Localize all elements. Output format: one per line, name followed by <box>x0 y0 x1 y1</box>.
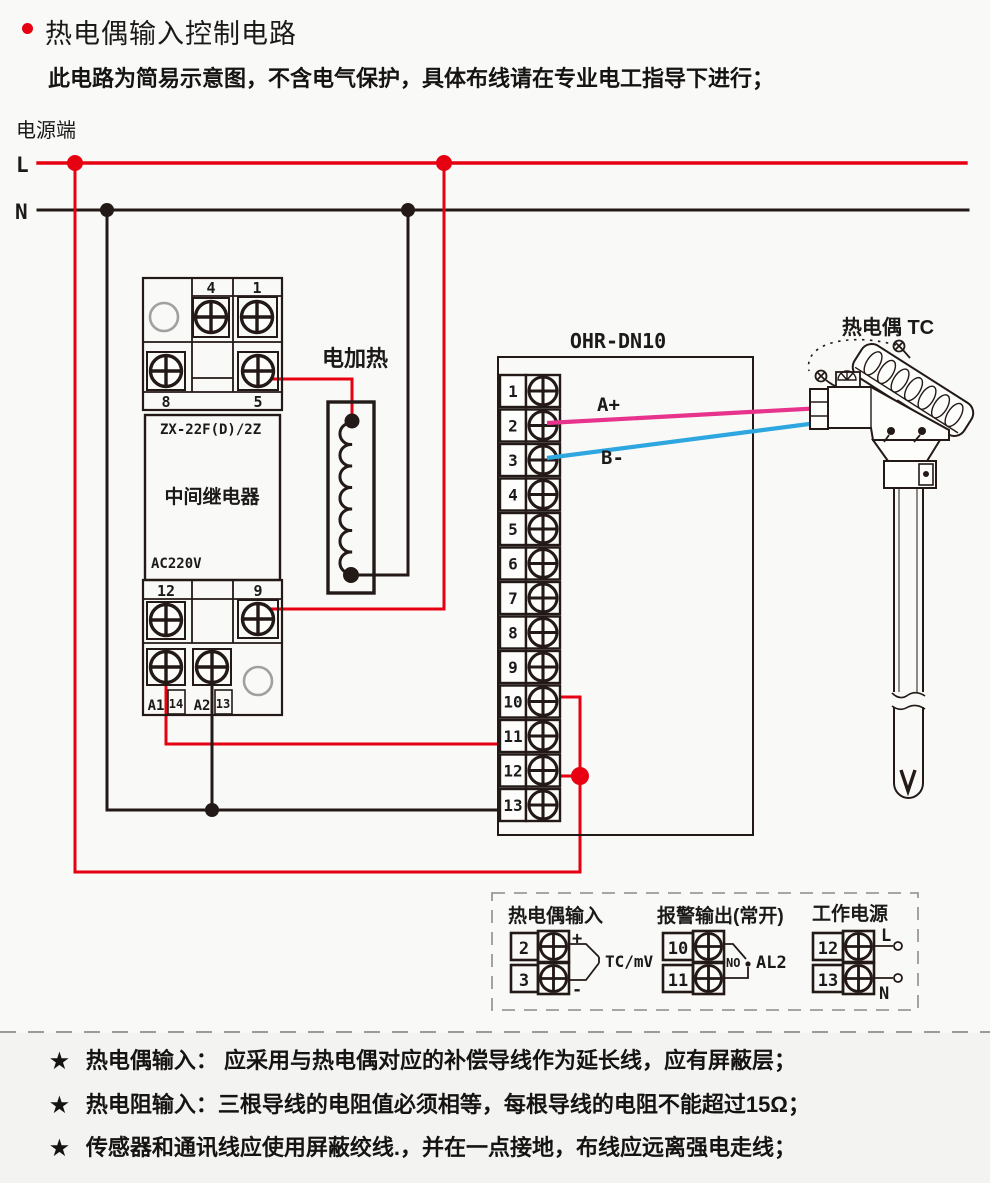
alarm-name-label: AL2 <box>756 953 787 973</box>
neutral-line-label: N <box>15 200 28 224</box>
relay-terminal-label: 4 <box>206 279 215 297</box>
ohr-terminal-row: 4 <box>500 479 560 511</box>
relay-unit: 4 1 8 5 ZX-22F(D)/2Z 中间继电器 AC220V 12 9 A… <box>143 278 282 715</box>
heater-bottom-node <box>343 567 359 583</box>
ohr-terminal-screw <box>529 550 557 578</box>
ohr-terminal-number: 8 <box>508 624 518 643</box>
relay-terminal-label: 8 <box>161 393 170 411</box>
legend-signal-label: TC/mV <box>605 952 654 971</box>
polarity-plus: + <box>572 929 582 949</box>
supply-neutral-label: N <box>879 984 889 1004</box>
ohr-terminal-number: 1 <box>508 382 518 401</box>
ohr-terminal-number: 9 <box>508 658 518 677</box>
junction-dot <box>436 155 452 171</box>
ohr-terminal-number: 5 <box>508 520 518 539</box>
ohr-title: OHR-DN10 <box>570 329 666 353</box>
ohr-terminal-row: 2 <box>500 410 560 442</box>
heater-outline <box>328 402 374 593</box>
ohr-terminal-number: 10 <box>503 693 522 712</box>
live-line-label: L <box>16 153 29 177</box>
ohr-terminal-number: 11 <box>503 727 522 746</box>
heater-coil <box>340 423 352 574</box>
junction-dot <box>205 803 219 817</box>
relay-screw-5 <box>243 356 274 387</box>
relay-terminal-label: 5 <box>253 393 262 411</box>
power-terminal-label: 电源端 <box>16 119 76 142</box>
relay-terminal-label: 9 <box>253 582 262 600</box>
relay-screw-A2 <box>197 652 228 683</box>
ohr-terminal-row: 8 <box>500 617 560 649</box>
tc-terminal-node <box>918 427 926 435</box>
relay-model: ZX-22F(D)/2Z <box>160 422 261 438</box>
ohr-terminal-screw <box>529 688 557 716</box>
legend-box: 热电偶输入 2 3 + - TC/mV 报警输出(常开) <box>492 893 918 1010</box>
legend-terminal-number: 2 <box>519 939 529 959</box>
ohr-terminal-screw <box>529 791 557 819</box>
legend-terminal-number: 10 <box>668 939 688 959</box>
relay-screw-A1 <box>151 652 182 683</box>
ohr-terminal-screw <box>529 412 557 440</box>
legend-alarm-output: 报警输出(常开) 10 11 NO AL2 <box>657 904 787 994</box>
ohr-terminal-row: 6 <box>500 548 560 580</box>
relay-screw-9 <box>243 604 274 635</box>
relay-terminal-label: 12 <box>157 582 175 600</box>
legend-terminal-number: 11 <box>668 971 688 991</box>
junction-dot <box>571 767 589 785</box>
legend-tc-input: 热电偶输入 2 3 + - TC/mV <box>508 904 654 1000</box>
legend-terminal-number: 3 <box>519 971 529 991</box>
relay5-to-heater-wire <box>272 379 352 418</box>
supply-live-label: L <box>881 926 891 946</box>
heater-top-node <box>345 414 360 429</box>
relay-screw-8 <box>151 356 182 387</box>
legend-title: 报警输出(常开) <box>657 904 784 927</box>
wire-b-label: B- <box>601 447 624 469</box>
thermocouple-label: 热电偶 TC <box>842 315 934 339</box>
legend-title: 工作电源 <box>812 902 888 925</box>
legend-terminal-number: 12 <box>818 939 838 959</box>
live-to-relay9-wire <box>270 163 444 609</box>
ohr-terminal-number: 7 <box>508 589 518 608</box>
relay-terminal-label: 13 <box>216 697 230 711</box>
heater-label: 电加热 <box>322 346 388 371</box>
ohr-terminal-number: 6 <box>508 555 518 574</box>
relay-screw-12 <box>151 605 182 636</box>
ohr-terminal-number: 12 <box>503 762 522 781</box>
polarity-minus: - <box>572 980 582 1000</box>
wiring-diagram-page: 热电偶输入控制电路 此电路为简易示意图，不含电气保护，具体布线请在专业电工指导下… <box>0 0 990 1183</box>
ohr-terminal-number: 13 <box>503 796 522 815</box>
wire-a-label: A+ <box>597 394 620 416</box>
ohr-terminal-row: 1 <box>500 375 560 407</box>
ohr-terminal-row: 13 <box>500 789 560 821</box>
probe-tip-mark <box>901 770 915 791</box>
ohr-terminal-screw <box>529 653 557 681</box>
relay-name: 中间继电器 <box>164 485 260 508</box>
junction-dot <box>100 203 114 217</box>
ohr-terminal-strip: 12345678910111213 <box>500 375 560 821</box>
relay-terminal-label: 1 <box>252 279 261 297</box>
legend-working-power: 工作电源 12 13 L N <box>812 902 902 1004</box>
ohr-terminal-row: 7 <box>500 582 560 614</box>
ohr-terminal-row: 3 <box>500 444 560 476</box>
heater-element: 电加热 <box>322 346 388 593</box>
relay-terminal-label: A2 <box>194 698 211 714</box>
thermocouple: 热电偶 TC <box>809 315 978 798</box>
relay-mount-hole <box>150 303 178 331</box>
ohr-terminal-screw <box>529 446 557 474</box>
ohr-terminal-screw <box>529 584 557 612</box>
ohr-terminal-row: 11 <box>500 720 560 752</box>
ohr-terminal-screw <box>529 619 557 647</box>
thermocouple-probe <box>892 488 925 798</box>
circuit-diagram: 电源端 L N <box>0 0 990 1183</box>
ohr-terminal-screw <box>529 481 557 509</box>
ohr-terminal-row: 5 <box>500 513 560 545</box>
ohr-terminal-row: 10 <box>500 686 560 718</box>
ohr-terminal-screw <box>529 757 557 785</box>
neutral-to-terminal13-wire <box>107 210 536 810</box>
ohr-terminal-screw <box>529 515 557 543</box>
legend-terminal-number: 13 <box>818 971 838 991</box>
neutral-to-heater-wire <box>353 210 408 575</box>
ohr-terminal-screw <box>529 377 557 405</box>
junction-dot <box>401 203 415 217</box>
relay-screw-4 <box>196 302 227 333</box>
relay-screw-1 <box>242 302 273 333</box>
ohr-terminal-number: 2 <box>508 417 518 436</box>
ohr-terminal-row: 12 <box>500 755 560 787</box>
tc-terminal-node <box>887 427 895 435</box>
relay-voltage: AC220V <box>151 556 202 572</box>
ohr-terminal-screw <box>529 722 557 750</box>
contact-type-label: NO <box>726 956 740 970</box>
junction-dot <box>67 155 83 171</box>
ohr-terminal-row: 9 <box>500 651 560 683</box>
relay-terminal-label: 14 <box>169 697 183 711</box>
relay-mount-hole <box>244 667 272 695</box>
ohr-terminal-number: 3 <box>508 451 518 470</box>
ohr-terminal-number: 4 <box>508 486 518 505</box>
legend-title: 热电偶输入 <box>508 904 603 927</box>
relay-terminal-label: A1 <box>148 698 165 714</box>
